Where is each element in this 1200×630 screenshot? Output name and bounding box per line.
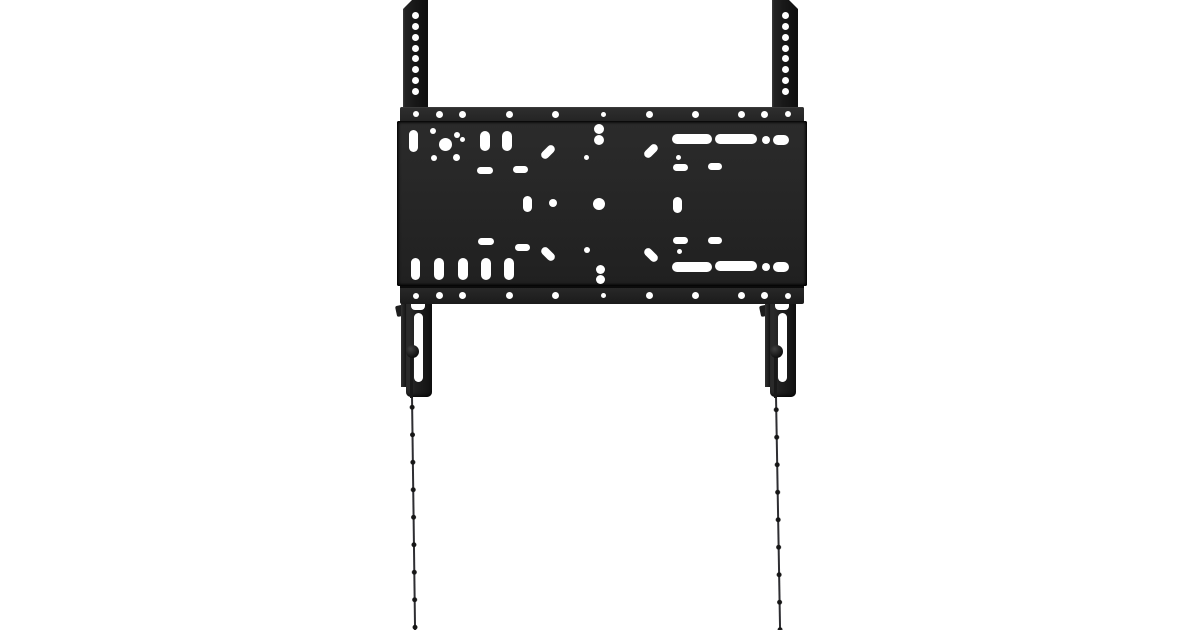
wall-plate xyxy=(397,107,807,302)
release-rod-lower xyxy=(774,353,778,398)
product-photo xyxy=(0,0,1200,630)
release-rod xyxy=(765,301,770,387)
bottom-flange xyxy=(400,286,804,304)
left-pull-cord xyxy=(409,396,418,630)
lock-knob xyxy=(406,345,419,358)
lock-knob xyxy=(770,345,783,358)
right-pull-cord xyxy=(773,396,783,630)
right-locking-bracket xyxy=(760,301,796,397)
release-rod-lower xyxy=(410,353,414,398)
plate-face xyxy=(397,121,807,287)
release-rod xyxy=(401,301,406,387)
left-locking-bracket xyxy=(396,301,432,397)
cutout-layer xyxy=(0,0,1200,630)
